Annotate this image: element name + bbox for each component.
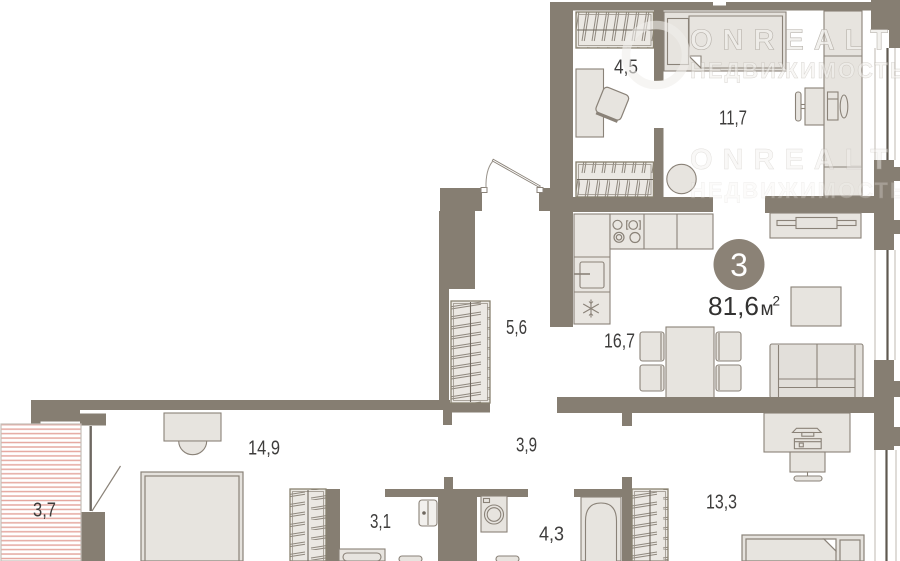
svg-text:13,3: 13,3 (706, 492, 737, 514)
svg-text:2: 2 (773, 294, 781, 309)
svg-text:3,7: 3,7 (33, 500, 56, 522)
svg-text:3,9: 3,9 (516, 435, 537, 457)
svg-text:ONREALT: ONREALT (690, 144, 898, 176)
svg-text:11,7: 11,7 (719, 108, 747, 130)
svg-text:81,6: 81,6 (708, 293, 759, 321)
svg-text:3: 3 (730, 247, 748, 283)
svg-text:ONREALT: ONREALT (690, 25, 898, 57)
svg-text:14,9: 14,9 (248, 438, 280, 460)
svg-text:5,6: 5,6 (506, 317, 527, 339)
svg-text:4,3: 4,3 (539, 524, 564, 546)
svg-text:3,1: 3,1 (370, 511, 391, 533)
svg-text:НЕДВИЖИМОСТЬ: НЕДВИЖИМОСТЬ (690, 58, 900, 83)
svg-text:16,7: 16,7 (604, 331, 635, 353)
svg-text:НЕДВИЖИМОСТЬ: НЕДВИЖИМОСТЬ (690, 178, 900, 203)
